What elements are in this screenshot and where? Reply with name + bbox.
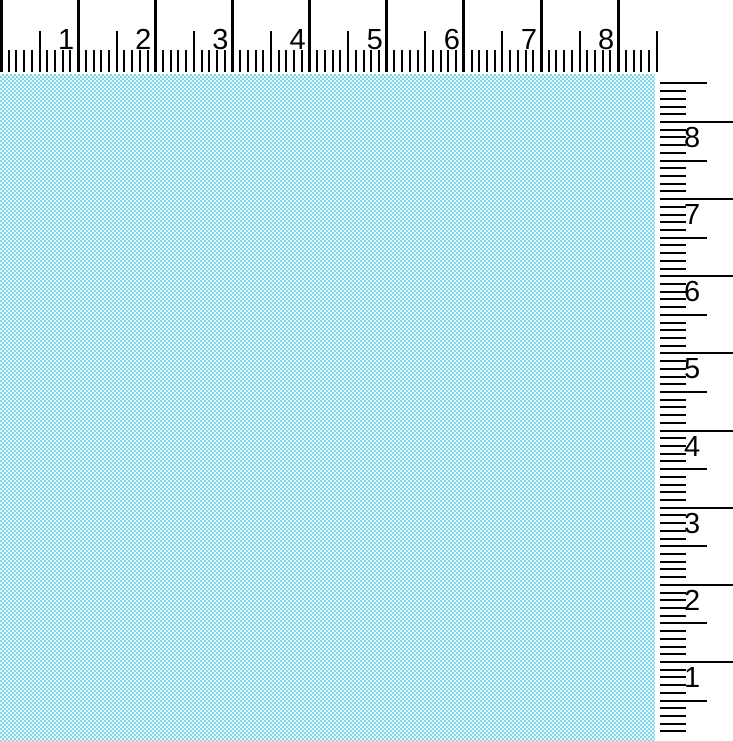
- right-ruler-tick-fine: [660, 298, 686, 300]
- top-ruler-tick-fine: [555, 50, 557, 72]
- top-ruler-tick-inch: [154, 0, 157, 72]
- right-ruler-tick-fine: [660, 592, 686, 594]
- right-ruler-tick-fine: [660, 730, 686, 732]
- right-ruler-tick-fine: [660, 499, 686, 501]
- top-ruler-tick-fine: [239, 50, 241, 72]
- right-ruler-tick-fine: [660, 676, 686, 678]
- right-ruler-number-1: 1: [684, 664, 724, 693]
- right-ruler-tick-fine: [660, 530, 686, 532]
- right-ruler-tick-fine: [660, 329, 686, 331]
- top-ruler-tick-fine: [478, 50, 480, 72]
- right-ruler-number-6: 6: [684, 278, 724, 307]
- right-ruler-tick-fine: [660, 229, 686, 231]
- right-ruler-tick-fine: [660, 129, 686, 131]
- right-ruler-tick-fine: [660, 252, 686, 254]
- right-ruler-tick-fine: [660, 453, 686, 455]
- right-ruler-tick-fine: [660, 206, 686, 208]
- right-ruler-tick-fine: [660, 437, 686, 439]
- right-ruler-tick-fine: [660, 553, 686, 555]
- right-ruler-tick-fine: [660, 723, 686, 725]
- top-ruler-tick-inch: [231, 0, 234, 72]
- right-ruler-tick-fine: [660, 638, 686, 640]
- right-ruler-tick-fine: [660, 136, 686, 138]
- right-ruler: 87654321: [655, 74, 733, 741]
- top-ruler-tick-fine: [8, 50, 10, 72]
- top-ruler-number-1: 1: [24, 26, 74, 55]
- right-ruler-tick-fine: [660, 460, 686, 462]
- right-ruler-tick-fine: [660, 630, 686, 632]
- right-ruler-tick-fine: [660, 368, 686, 370]
- right-ruler-tick-fine: [660, 561, 686, 563]
- right-ruler-tick-fine: [660, 268, 686, 270]
- right-ruler-number-7: 7: [684, 201, 724, 230]
- right-ruler-tick-fine: [660, 399, 686, 401]
- top-ruler-number-4: 4: [256, 26, 306, 55]
- right-ruler-tick-fine: [660, 406, 686, 408]
- right-ruler-number-8: 8: [684, 124, 724, 153]
- top-ruler-number-3: 3: [178, 26, 228, 55]
- top-ruler-tick-fine: [548, 50, 550, 72]
- right-ruler-tick-fine: [660, 376, 686, 378]
- right-ruler-tick-fine: [660, 183, 686, 185]
- right-ruler-tick-fine: [660, 98, 686, 100]
- right-ruler-tick-fine: [660, 144, 686, 146]
- top-ruler-tick-fine: [401, 50, 403, 72]
- top-ruler-tick-fine: [170, 50, 172, 72]
- top-ruler-tick-fine: [162, 50, 164, 72]
- right-ruler-tick-fine: [660, 221, 686, 223]
- top-ruler-tick-inch: [385, 0, 388, 72]
- right-ruler-tick-fine: [660, 260, 686, 262]
- right-ruler-tick-half: [660, 160, 707, 162]
- fabric-swatch: [0, 74, 655, 741]
- right-ruler-tick-fine: [660, 214, 686, 216]
- right-ruler-tick-fine: [660, 383, 686, 385]
- right-ruler-tick-half: [660, 314, 707, 316]
- right-ruler-tick-fine: [660, 476, 686, 478]
- right-ruler-tick-fine: [660, 522, 686, 524]
- right-ruler-tick-fine: [660, 576, 686, 578]
- right-ruler-tick-fine: [660, 684, 686, 686]
- right-ruler-tick-half: [660, 700, 707, 702]
- top-ruler-tick-fine: [625, 50, 627, 72]
- top-ruler-tick-fine: [247, 50, 249, 72]
- right-ruler-number-2: 2: [684, 587, 724, 616]
- right-ruler-tick-fine: [660, 692, 686, 694]
- top-ruler-number-6: 6: [410, 26, 460, 55]
- fabric-product-photo: 12345678 87654321: [0, 0, 733, 741]
- top-ruler-tick-fine: [648, 50, 650, 72]
- right-ruler-tick-fine: [660, 306, 686, 308]
- top-ruler-number-8: 8: [564, 26, 614, 55]
- right-ruler-tick-fine: [660, 167, 686, 169]
- right-ruler-tick-fine: [660, 646, 686, 648]
- top-ruler-tick-fine: [93, 50, 95, 72]
- right-ruler-tick-fine: [660, 322, 686, 324]
- top-ruler-tick-fine: [640, 50, 642, 72]
- top-ruler-tick-fine: [471, 50, 473, 72]
- top-ruler-tick-inch: [617, 0, 620, 72]
- top-ruler-tick-fine: [324, 50, 326, 72]
- right-ruler-tick-half: [660, 391, 707, 393]
- right-ruler-tick-half: [660, 545, 707, 547]
- right-ruler-tick-fine: [660, 491, 686, 493]
- top-ruler-tick-fine: [15, 50, 17, 72]
- right-ruler-number-5: 5: [684, 355, 724, 384]
- right-ruler-tick-fine: [660, 707, 686, 709]
- right-ruler-number-3: 3: [684, 510, 724, 539]
- right-ruler-tick-half: [660, 622, 707, 624]
- top-ruler-tick-fine: [633, 50, 635, 72]
- top-ruler-number-7: 7: [487, 26, 537, 55]
- right-ruler-tick-fine: [660, 345, 686, 347]
- right-ruler-tick-fine: [660, 715, 686, 717]
- right-ruler-tick-fine: [660, 514, 686, 516]
- top-ruler-tick-inch: [308, 0, 311, 72]
- top-ruler-tick-fine: [316, 50, 318, 72]
- top-ruler-tick-inch: [0, 0, 3, 72]
- right-ruler-tick-half: [660, 237, 707, 239]
- right-ruler-tick-half: [660, 468, 707, 470]
- top-ruler-tick-inch: [540, 0, 543, 72]
- right-ruler-tick-fine: [660, 106, 686, 108]
- top-ruler-number-5: 5: [333, 26, 383, 55]
- right-ruler-tick-fine: [660, 90, 686, 92]
- right-ruler-tick-fine: [660, 190, 686, 192]
- right-ruler-tick-fine: [660, 422, 686, 424]
- right-ruler-number-4: 4: [684, 433, 724, 462]
- top-ruler-tick-half: [656, 31, 658, 72]
- right-ruler-tick-fine: [660, 283, 686, 285]
- right-ruler-tick-fine: [660, 538, 686, 540]
- right-ruler-tick-fine: [660, 445, 686, 447]
- top-ruler-tick-inch: [462, 0, 465, 72]
- right-ruler-tick-fine: [660, 360, 686, 362]
- right-ruler-tick-fine: [660, 615, 686, 617]
- right-ruler-tick-fine: [660, 291, 686, 293]
- right-ruler-tick-fine: [660, 484, 686, 486]
- right-ruler-tick-fine: [660, 653, 686, 655]
- right-ruler-tick-fine: [660, 414, 686, 416]
- right-ruler-tick-fine: [660, 152, 686, 154]
- right-ruler-tick-fine: [660, 669, 686, 671]
- right-ruler-tick-fine: [660, 113, 686, 115]
- top-ruler-tick-fine: [85, 50, 87, 72]
- top-ruler-tick-inch: [77, 0, 80, 72]
- right-ruler-tick-fine: [660, 337, 686, 339]
- top-ruler-number-2: 2: [101, 26, 151, 55]
- right-ruler-tick-fine: [660, 244, 686, 246]
- top-ruler-tick-fine: [393, 50, 395, 72]
- right-ruler-tick-fine: [660, 599, 686, 601]
- right-ruler-tick-half: [660, 82, 707, 84]
- top-ruler: 12345678: [0, 0, 733, 74]
- right-ruler-tick-fine: [660, 607, 686, 609]
- right-ruler-tick-fine: [660, 568, 686, 570]
- right-ruler-tick-fine: [660, 175, 686, 177]
